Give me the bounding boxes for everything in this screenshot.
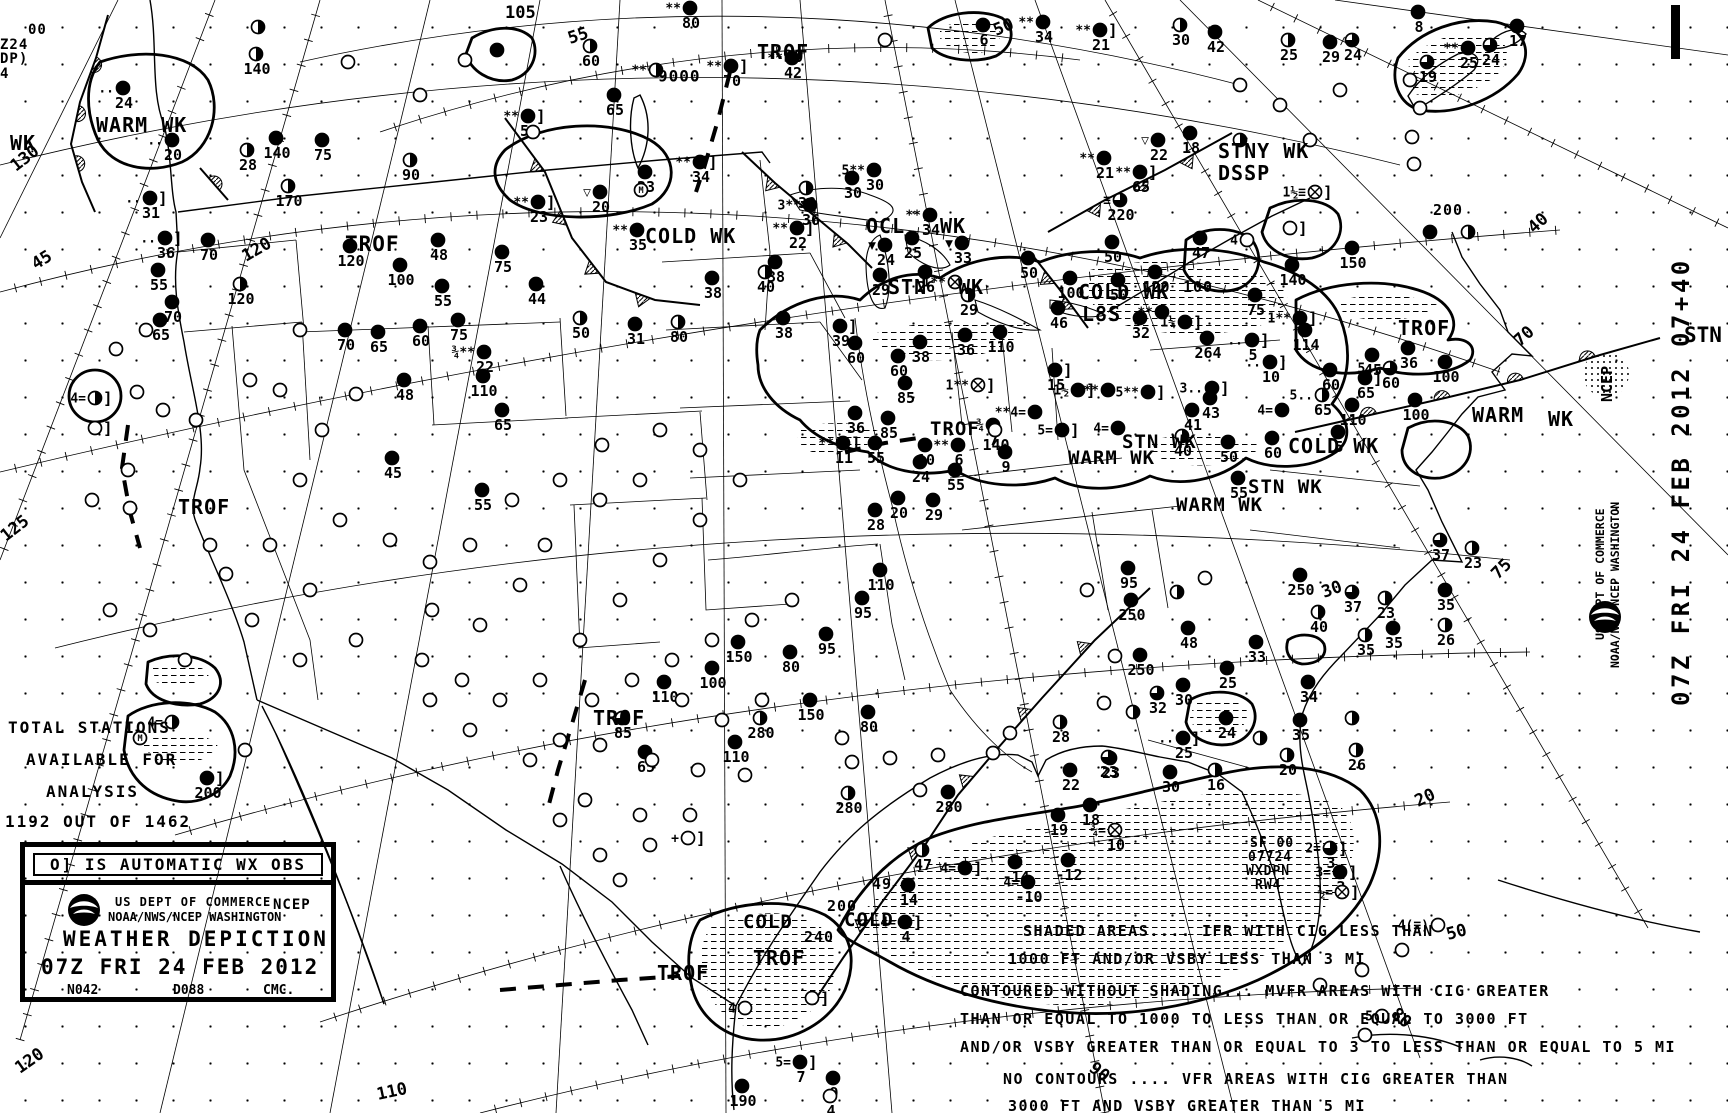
station-plot bbox=[86, 494, 99, 507]
graticule-tick bbox=[19, 499, 27, 502]
station-plot: 43 bbox=[1202, 392, 1220, 423]
map-label: 240 bbox=[804, 928, 834, 946]
station-plot: 30 bbox=[1162, 766, 1180, 797]
station-plot bbox=[414, 89, 427, 102]
station-plot: 140 bbox=[1279, 259, 1306, 290]
svg-text:]: ] bbox=[973, 859, 983, 878]
svg-text:4=: 4= bbox=[940, 862, 956, 877]
map-label: RW4 bbox=[1255, 878, 1281, 893]
station-plot: ▽22 bbox=[1141, 134, 1168, 165]
svg-text:▽: ▽ bbox=[583, 186, 591, 201]
map-label: 200 bbox=[827, 897, 857, 915]
station-plot bbox=[1406, 131, 1419, 144]
graticule-tick bbox=[1296, 249, 1297, 258]
svg-text:1**: 1** bbox=[946, 379, 970, 394]
station-plot: 75 bbox=[450, 314, 468, 345]
svg-text:65: 65 bbox=[370, 338, 388, 356]
map-label: 100 bbox=[1183, 278, 1213, 296]
state-border bbox=[855, 318, 1032, 772]
station-plot: 80 bbox=[782, 646, 800, 677]
svg-text:5**: 5** bbox=[1116, 386, 1140, 401]
svg-text:]: ] bbox=[1308, 309, 1318, 328]
grid-label: 40 bbox=[1524, 209, 1553, 238]
graticule-tick bbox=[1645, 185, 1649, 193]
graticule-tick bbox=[751, 49, 752, 58]
svg-text:28: 28 bbox=[1052, 728, 1070, 746]
svg-text:▼: ▼ bbox=[945, 237, 953, 252]
map-label: TROF bbox=[593, 706, 645, 730]
station-plot bbox=[1199, 572, 1212, 585]
station-plot bbox=[1274, 99, 1287, 112]
station-plot bbox=[1396, 944, 1409, 957]
svg-text:55: 55 bbox=[474, 496, 492, 514]
station-plot: 26 bbox=[1348, 744, 1366, 775]
svg-text:140: 140 bbox=[243, 60, 270, 78]
svg-text:37: 37 bbox=[1432, 546, 1450, 564]
svg-text:110: 110 bbox=[470, 382, 497, 400]
right-margin-agency2: NOAA/NWS/NCEP WASHINGTON bbox=[1608, 502, 1622, 668]
station-plot: **]11 bbox=[818, 434, 860, 468]
graticule-tick bbox=[1188, 661, 1189, 670]
graticule-tick bbox=[1437, 573, 1445, 578]
station-plot bbox=[694, 514, 707, 527]
graticule-tick bbox=[1270, 3, 1274, 11]
station-plot bbox=[676, 694, 689, 707]
svg-text:38: 38 bbox=[912, 348, 930, 366]
svg-text:24: 24 bbox=[115, 94, 133, 112]
station-plot: 55 bbox=[434, 280, 452, 311]
station-plot bbox=[424, 556, 437, 569]
svg-text:35: 35 bbox=[1385, 634, 1403, 652]
graticule-tick bbox=[1543, 752, 1551, 757]
station-plot bbox=[1424, 226, 1437, 239]
svg-text:95: 95 bbox=[1120, 574, 1138, 592]
svg-text:100: 100 bbox=[699, 674, 726, 692]
station-plot: 110 bbox=[1339, 399, 1366, 430]
station-plot: 50 bbox=[1020, 252, 1038, 283]
station-plot: 60 bbox=[412, 320, 430, 351]
station-plot: 23 bbox=[1377, 592, 1395, 623]
station-plot bbox=[884, 752, 897, 765]
station-plot: 70 bbox=[337, 324, 355, 355]
station-plot: 41 bbox=[1184, 404, 1202, 435]
svg-text:65: 65 bbox=[152, 326, 170, 344]
svg-text:80: 80 bbox=[782, 658, 800, 676]
state-border bbox=[1092, 512, 1108, 610]
graticule-tick bbox=[1595, 842, 1603, 847]
svg-text:75: 75 bbox=[1247, 301, 1265, 319]
svg-text:24: 24 bbox=[1218, 724, 1236, 742]
station-plot bbox=[190, 414, 203, 427]
station-plot: 34 bbox=[1300, 676, 1318, 707]
station-plot: 65 bbox=[494, 404, 512, 435]
station-plot: 42 bbox=[1207, 26, 1225, 57]
svg-text:50: 50 bbox=[1104, 248, 1122, 266]
svg-text:46: 46 bbox=[1050, 314, 1068, 332]
svg-text:]: ] bbox=[986, 376, 996, 395]
map-label: TROF bbox=[178, 495, 230, 519]
total-stations-line: 1192 OUT OF 1462 bbox=[5, 812, 191, 831]
station-plot: 25 bbox=[1219, 662, 1237, 693]
graticule-line bbox=[330, 0, 540, 1113]
graticule-tick bbox=[1214, 191, 1222, 196]
station-plot bbox=[706, 634, 719, 647]
station-plot: 38 bbox=[704, 272, 722, 303]
graticule-tick bbox=[373, 219, 374, 228]
station-plot bbox=[987, 747, 1000, 760]
warm-front-pip bbox=[1434, 391, 1450, 401]
graticule-tick bbox=[857, 303, 858, 312]
svg-text:36: 36 bbox=[957, 341, 975, 359]
graticule-tick bbox=[1411, 528, 1419, 533]
svg-text:1½: 1½ bbox=[1053, 384, 1069, 399]
svg-text:34: 34 bbox=[692, 168, 710, 186]
station-plot bbox=[692, 764, 705, 777]
station-plot: 95 bbox=[854, 592, 872, 623]
graticule-tick bbox=[955, 1018, 956, 1027]
station-plot: ..24 bbox=[98, 82, 133, 113]
svg-text:29: 29 bbox=[1322, 48, 1340, 66]
graticule-tick bbox=[1387, 60, 1391, 68]
svg-text:280: 280 bbox=[935, 798, 962, 816]
graticule-tick bbox=[347, 222, 348, 231]
graticule-tick bbox=[1012, 281, 1013, 290]
station-plot bbox=[1081, 584, 1094, 597]
svg-text:35: 35 bbox=[1357, 641, 1375, 659]
map-label: COLD WK bbox=[645, 224, 736, 248]
station-plot: 100 bbox=[1432, 356, 1459, 387]
station-plot: 4= bbox=[1257, 404, 1288, 419]
svg-text:34: 34 bbox=[922, 221, 940, 239]
svg-text:22: 22 bbox=[1150, 146, 1168, 164]
svg-text:20: 20 bbox=[592, 198, 610, 216]
graticule-tick bbox=[1214, 659, 1215, 668]
svg-text:32: 32 bbox=[1149, 699, 1167, 717]
svg-text:4: 4 bbox=[1230, 234, 1238, 249]
station-plot: ¾** bbox=[1076, 384, 1115, 399]
graticule-tick bbox=[121, 232, 129, 235]
graticule-tick bbox=[177, 86, 185, 89]
graticule-tick bbox=[196, 38, 204, 41]
svg-text:4=: 4= bbox=[70, 392, 86, 407]
station-plot: 20 bbox=[890, 492, 908, 523]
svg-text:24: 24 bbox=[1482, 51, 1500, 69]
svg-text:114: 114 bbox=[1292, 336, 1319, 354]
svg-text:35: 35 bbox=[1437, 596, 1455, 614]
svg-text:**: ** bbox=[1018, 16, 1034, 31]
svg-text:**: ** bbox=[675, 156, 691, 171]
graticule-tick bbox=[1201, 169, 1209, 174]
trough-line bbox=[500, 976, 680, 990]
graticule-tick bbox=[1575, 150, 1579, 158]
svg-text:36: 36 bbox=[157, 244, 175, 262]
svg-text:22: 22 bbox=[1062, 776, 1080, 794]
svg-text:1½≡: 1½≡ bbox=[1283, 186, 1307, 201]
weather-depiction-chart: ..24140..20..]31..]365570281407517090120… bbox=[0, 0, 1728, 1113]
svg-text:**: ** bbox=[1115, 166, 1131, 181]
station-plot bbox=[1408, 158, 1421, 171]
station-plot bbox=[539, 539, 552, 552]
station-plot: 60 bbox=[1264, 432, 1282, 463]
svg-text:11: 11 bbox=[835, 449, 853, 467]
map-label: TROF bbox=[753, 946, 805, 970]
station-plot: **]70 bbox=[706, 57, 748, 91]
state-border bbox=[1250, 530, 1400, 548]
coastline bbox=[1498, 880, 1700, 932]
station-plot: 100 bbox=[699, 662, 726, 693]
station-plot bbox=[579, 794, 592, 807]
station-plot: 29 bbox=[925, 494, 943, 525]
station-plot: 25 bbox=[904, 232, 922, 263]
svg-text:**: ** bbox=[1443, 42, 1459, 57]
svg-text:110: 110 bbox=[987, 338, 1014, 356]
station-plot: 50 bbox=[1104, 236, 1122, 267]
map-label: COLD WK bbox=[1288, 434, 1379, 458]
svg-text:2=: 2= bbox=[1305, 842, 1321, 857]
graticule-tick bbox=[321, 225, 322, 234]
graticule-tick bbox=[1555, 226, 1556, 235]
svg-text:80: 80 bbox=[682, 14, 700, 32]
graticule-tick bbox=[1504, 116, 1508, 124]
svg-text:37: 37 bbox=[1344, 598, 1362, 616]
station-plot: 36 bbox=[847, 407, 865, 438]
station-plot bbox=[756, 694, 769, 707]
graticule-tick bbox=[93, 305, 101, 308]
svg-text:1**: 1** bbox=[1268, 312, 1292, 327]
svg-text:60: 60 bbox=[412, 332, 430, 350]
svg-text:22: 22 bbox=[789, 234, 807, 252]
graticule-tick bbox=[1162, 662, 1163, 671]
station-plot: 120 bbox=[227, 278, 254, 309]
svg-text:]: ] bbox=[696, 829, 706, 848]
svg-text:5=: 5= bbox=[775, 1056, 791, 1071]
state-border bbox=[690, 470, 860, 478]
station-plot bbox=[494, 694, 507, 707]
graticule-tick bbox=[1516, 707, 1524, 712]
svg-text:34: 34 bbox=[1300, 688, 1318, 706]
svg-text:150: 150 bbox=[1339, 254, 1366, 272]
svg-text:70: 70 bbox=[337, 336, 355, 354]
svg-text:10: 10 bbox=[917, 451, 935, 469]
svg-text:25: 25 bbox=[1460, 54, 1478, 72]
state-border bbox=[962, 506, 1180, 530]
station-plot: 45 bbox=[384, 452, 402, 483]
graticule-tick bbox=[1404, 801, 1405, 810]
graticule-tick bbox=[1036, 51, 1037, 60]
cold-front-pip bbox=[766, 176, 780, 190]
graticule-tick bbox=[840, 218, 841, 227]
svg-text:]: ] bbox=[1220, 379, 1230, 398]
station-plot: 110 bbox=[722, 736, 749, 767]
graticule-tick bbox=[1478, 232, 1479, 241]
svg-text:26: 26 bbox=[1348, 756, 1366, 774]
grid-label: 30 bbox=[1319, 577, 1345, 603]
svg-text:38: 38 bbox=[704, 284, 722, 302]
cold-front-pip bbox=[1018, 708, 1032, 722]
station-plot bbox=[110, 343, 123, 356]
state-border bbox=[708, 544, 878, 560]
graticule-tick bbox=[1452, 234, 1453, 243]
ncep-label: NCEP bbox=[273, 897, 311, 913]
svg-text:**: ** bbox=[1079, 152, 1095, 167]
svg-text:100: 100 bbox=[1432, 368, 1459, 386]
graticule-tick bbox=[1219, 257, 1220, 266]
station-plot: 23 bbox=[1464, 542, 1482, 573]
svg-text:¾**: ¾** bbox=[452, 346, 476, 361]
station-plot: 24 bbox=[1344, 34, 1362, 65]
station-plot: 8 bbox=[1412, 6, 1425, 37]
graticule-tick bbox=[1598, 162, 1602, 170]
station-plot: ▼33 bbox=[945, 237, 972, 268]
station-plot bbox=[1404, 74, 1417, 87]
cold-front-pip bbox=[1087, 203, 1101, 217]
svg-text:47: 47 bbox=[1192, 244, 1210, 262]
svg-text:25: 25 bbox=[1219, 674, 1237, 692]
svg-text:65: 65 bbox=[1132, 178, 1150, 196]
chart-datetime: 07Z FRI 24 FEB 2012 bbox=[41, 955, 319, 979]
state-border bbox=[666, 322, 820, 330]
svg-text:4: 4 bbox=[728, 1002, 736, 1017]
svg-text:30: 30 bbox=[1175, 691, 1193, 709]
state-border bbox=[565, 411, 702, 418]
map-label: WARM WK bbox=[1068, 447, 1155, 469]
graticule-tick bbox=[1621, 887, 1629, 892]
state-border bbox=[680, 401, 850, 408]
map-label: COLD WK bbox=[1078, 280, 1169, 304]
svg-text:]: ] bbox=[913, 913, 923, 932]
svg-text:34: 34 bbox=[1035, 28, 1053, 46]
station-plot: 55 bbox=[150, 264, 168, 295]
right-margin-ncep: NCEP bbox=[1598, 366, 1616, 402]
svg-text:250: 250 bbox=[1127, 661, 1154, 679]
graticule-tick bbox=[425, 214, 426, 223]
svg-text:**4=: **4= bbox=[995, 406, 1026, 421]
svg-text:19: 19 bbox=[1050, 821, 1068, 839]
state-border bbox=[178, 240, 296, 252]
svg-text:33: 33 bbox=[1248, 648, 1266, 666]
svg-text:65: 65 bbox=[494, 416, 512, 434]
corner-bar bbox=[1671, 5, 1680, 59]
legend-note-line: 3000 FT AND VSBY GREATER THAN 5 MI bbox=[1008, 1097, 1366, 1113]
svg-text:]: ] bbox=[1348, 863, 1358, 882]
station-plot: 4=] bbox=[70, 389, 112, 408]
graticule-tick bbox=[1481, 105, 1485, 113]
graticule-tick bbox=[47, 426, 55, 429]
station-plot bbox=[574, 634, 587, 647]
svg-text:28: 28 bbox=[867, 516, 885, 534]
station-plot bbox=[746, 614, 759, 627]
graticule-tick bbox=[1111, 666, 1112, 675]
svg-text:140: 140 bbox=[263, 144, 290, 162]
svg-text:**: ** bbox=[503, 110, 519, 125]
state-border bbox=[662, 253, 810, 262]
station-plot bbox=[144, 624, 157, 637]
station-plot bbox=[304, 584, 317, 597]
svg-text:**: ** bbox=[905, 209, 921, 224]
graticule-tick bbox=[1464, 617, 1472, 622]
warm-front-pip bbox=[76, 106, 86, 122]
station-plot: 140 bbox=[243, 48, 270, 79]
station-plot bbox=[654, 424, 667, 437]
station-plot bbox=[739, 769, 752, 782]
svg-text:90: 90 bbox=[402, 166, 420, 184]
svg-text:-10: -10 bbox=[1015, 888, 1042, 906]
graticule-tick bbox=[1372, 460, 1380, 465]
station-plot: 80 bbox=[670, 316, 688, 347]
station-plot: 60 bbox=[847, 337, 865, 368]
svg-text:]: ] bbox=[1156, 383, 1166, 402]
grid-label: 125 bbox=[0, 511, 33, 546]
map-label: COLD bbox=[743, 911, 793, 933]
warm-front-pip bbox=[1507, 373, 1523, 383]
map-label: OCL bbox=[866, 214, 905, 238]
station-plot bbox=[1234, 79, 1247, 92]
station-plot: ] bbox=[1284, 219, 1308, 238]
station-plot: 38 bbox=[775, 312, 793, 343]
legend-note-line: NO CONTOURS .... VFR AREAS WITH CIG GREA… bbox=[1003, 1070, 1508, 1088]
station-plot: 22 bbox=[1062, 764, 1080, 795]
noaa-logo bbox=[67, 893, 101, 927]
svg-text:36: 36 bbox=[1400, 354, 1418, 372]
graticule-tick bbox=[1692, 207, 1696, 215]
svg-text:60: 60 bbox=[1264, 444, 1282, 462]
station-plot: ..20 bbox=[147, 134, 182, 165]
cold-front-pip bbox=[833, 233, 847, 247]
svg-text:23: 23 bbox=[1464, 554, 1482, 572]
svg-text:**: ** bbox=[933, 439, 949, 454]
map-label: TROF bbox=[345, 232, 400, 256]
station-plot: ..]25 bbox=[1158, 729, 1200, 763]
svg-text:]: ] bbox=[1338, 839, 1348, 858]
station-plot bbox=[1414, 102, 1427, 115]
svg-text:**: ** bbox=[772, 222, 788, 237]
svg-text:95: 95 bbox=[818, 640, 836, 658]
svg-text:38: 38 bbox=[775, 324, 793, 342]
station-plot: +] bbox=[671, 829, 705, 848]
station-plot: 5..65 bbox=[1290, 389, 1333, 420]
station-plot: 29 bbox=[1322, 36, 1340, 67]
station-plot: **6 bbox=[933, 439, 964, 470]
station-plot: 35 bbox=[1385, 622, 1403, 653]
station-plot bbox=[1127, 706, 1140, 719]
graticule-tick bbox=[1556, 775, 1564, 780]
station-plot: 25 bbox=[1280, 34, 1298, 65]
station-plot: 280 bbox=[935, 786, 962, 817]
graticule-tick bbox=[1668, 196, 1672, 204]
station-plot: 280 bbox=[747, 712, 774, 743]
svg-text:190: 190 bbox=[729, 1092, 756, 1110]
station-plot bbox=[342, 56, 355, 69]
svg-text:]: ] bbox=[1298, 219, 1308, 238]
station-plot: 170 bbox=[275, 180, 302, 211]
svg-text:75: 75 bbox=[314, 146, 332, 164]
graticule-tick bbox=[1007, 675, 1008, 684]
auto-obs-label: O] IS AUTOMATIC WX OBS bbox=[33, 853, 323, 876]
map-label: TROF bbox=[930, 418, 980, 440]
graticule-tick bbox=[1385, 483, 1393, 488]
station-plot: **21 bbox=[1079, 152, 1114, 183]
svg-text:60: 60 bbox=[847, 349, 865, 367]
state-border bbox=[296, 240, 304, 330]
auto-obs-box: O] IS AUTOMATIC WX OBS bbox=[20, 842, 336, 880]
legend-note-line: AND/OR VSBY GREATER THAN OR EQUAL TO 3 T… bbox=[960, 1038, 1676, 1056]
station-plot: **4= bbox=[995, 406, 1042, 421]
station-plot: **]21 bbox=[1075, 21, 1117, 55]
graticule-tick bbox=[37, 450, 45, 453]
station-plot bbox=[594, 849, 607, 862]
graticule-tick bbox=[1503, 230, 1504, 239]
svg-text:120: 120 bbox=[227, 290, 254, 308]
